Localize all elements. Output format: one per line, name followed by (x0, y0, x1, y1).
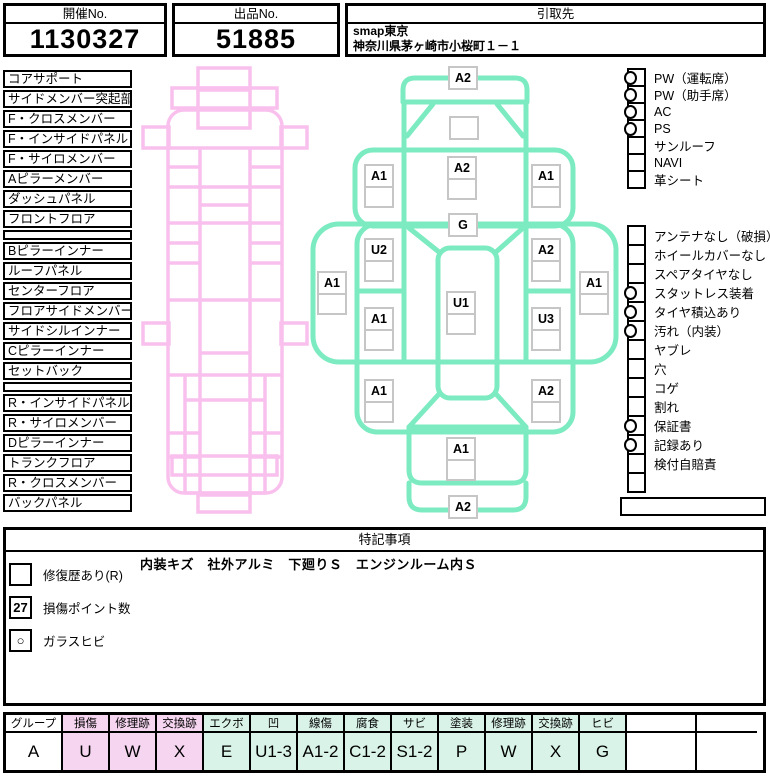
legend-column-header: エクボ (204, 715, 249, 733)
condition-checklist: アンテナなし（破損）ホイールカバーなしスペアタイヤなしスタットレス装着タイヤ積込… (627, 225, 770, 493)
damage-empty-cell (533, 186, 559, 206)
checklist-row: 革シート (627, 170, 737, 189)
check-circle-icon (624, 419, 637, 433)
legend-column-value: W (486, 733, 531, 770)
part-row: F・サイロメンバー (3, 150, 132, 168)
legend-column-value (627, 733, 695, 770)
lot-no-value: 51885 (175, 24, 337, 54)
legend-column-value: G (580, 733, 625, 770)
damage-empty-cell (581, 293, 607, 313)
damage-code: U2 (366, 240, 392, 260)
damage-empty-cell (448, 313, 474, 333)
lot-no-box: 出品No. 51885 (172, 3, 340, 57)
part-row: セットバック (3, 362, 132, 380)
damage-code: A1 (448, 439, 474, 459)
part-row: Cピラーインナー (3, 342, 132, 360)
legend-box (9, 563, 32, 586)
damage-marker-u1: U1 (446, 291, 476, 335)
damage-code: A1 (366, 309, 392, 329)
checkbox (627, 358, 646, 379)
part-row: フロアサイドメンバー (3, 302, 132, 320)
checklist-row: コゲ (627, 377, 770, 398)
checklist-row: 検付自賠責 (627, 453, 770, 474)
body-parts-list: コアサポートサイドメンバー突起部F・クロスメンバーF・インサイドパネルF・サイロ… (3, 70, 132, 514)
checkbox (627, 301, 646, 322)
legend-column: 線傷A1-2 (298, 715, 345, 770)
part-row: ダッシュパネル (3, 190, 132, 208)
legend-column (627, 715, 697, 770)
legend-column: ヒビG (580, 715, 627, 770)
checkbox (627, 377, 646, 398)
damage-marker-a1: A1 (364, 164, 394, 208)
legend-column: グループA (6, 715, 63, 770)
part-row: R・クロスメンバー (3, 474, 132, 492)
checklist-label: 検付自賠責 (654, 454, 717, 473)
legend-column-value: C1-2 (345, 733, 390, 770)
damage-code: U3 (533, 309, 559, 329)
legend-column-header: 線傷 (298, 715, 343, 733)
checklist-row: 記録あり (627, 434, 770, 455)
legend-column-value: U1-3 (251, 733, 296, 770)
legend-column-value (697, 733, 757, 770)
damage-marker-empty (449, 116, 479, 140)
checklist-row: タイヤ積込あり (627, 301, 770, 322)
part-separator (3, 382, 132, 392)
special-notes-remark: 内装キズ 社外アルミ 下廻りＳ エンジンルーム内Ｓ (140, 554, 477, 573)
damage-marker-a1: A1 (579, 271, 609, 315)
part-row: Aピラーメンバー (3, 170, 132, 188)
damage-code: G (450, 215, 476, 235)
legend-column-value: W (110, 733, 155, 770)
checklist-row: スペアタイヤなし (627, 263, 770, 284)
damage-empty-cell (533, 329, 559, 349)
checklist-label: NAVI (654, 156, 682, 170)
checklist-label: PS (654, 122, 671, 136)
damage-code: A2 (533, 381, 559, 401)
checklist-label: 穴 (654, 359, 667, 378)
legend-box: 27 (9, 596, 32, 619)
underbody-frame-diagram (140, 60, 310, 522)
damage-code (451, 118, 477, 138)
check-circle-icon (624, 324, 637, 338)
checklist-row: アンテナなし（破損） (627, 225, 770, 246)
legend-column-value: E (204, 733, 249, 770)
damage-marker-a1: A1 (364, 379, 394, 423)
legend-column: サビS1-2 (392, 715, 439, 770)
checklist-label: ヤブレ (654, 340, 692, 359)
legend-column: 損傷U (63, 715, 110, 770)
checklist-label: アンテナなし（破損） (654, 226, 770, 245)
checkbox (627, 244, 646, 265)
damage-marker-g: G (448, 213, 478, 237)
damage-code: A2 (533, 240, 559, 260)
checklist-label: タイヤ積込あり (654, 302, 741, 321)
damage-empty-cell (533, 401, 559, 421)
auction-no-label: 開催No. (6, 6, 164, 24)
damage-empty-cell (448, 459, 474, 479)
damage-code: A2 (449, 158, 475, 178)
legend-box: ○ (9, 629, 32, 652)
damage-marker-u3: U3 (531, 307, 561, 351)
checkbox (627, 434, 646, 455)
part-row: ルーフパネル (3, 262, 132, 280)
part-row: センターフロア (3, 282, 132, 300)
checkbox (627, 339, 646, 360)
damage-code: A2 (450, 68, 476, 88)
legend-label: 修復歴あり(R) (43, 565, 123, 584)
pickup-name: smap東京 (353, 24, 408, 39)
legend-column-value: X (533, 733, 578, 770)
repair-history-legend: 修復歴あり(R) (9, 563, 123, 586)
legend-column-header: 交換跡 (157, 715, 202, 733)
part-row: Dピラーインナー (3, 434, 132, 452)
damage-empty-cell (366, 260, 392, 280)
checkbox (627, 396, 646, 417)
auction-no-box: 開催No. 1130327 (3, 3, 167, 57)
checklist-label: ホイールカバーなし (654, 245, 766, 264)
legend-column: 交換跡X (157, 715, 204, 770)
damage-code: A1 (533, 166, 559, 186)
legend-column-header: 修理跡 (110, 715, 155, 733)
check-circle-icon (624, 88, 637, 102)
part-row: サイドシルインナー (3, 322, 132, 340)
legend-column-value: S1-2 (392, 733, 437, 770)
checklist-row: 割れ (627, 396, 770, 417)
damage-empty-cell (319, 293, 345, 313)
pickup-label: 引取先 (348, 6, 763, 24)
part-separator (3, 230, 132, 240)
checkbox (627, 170, 646, 189)
checkbox (627, 263, 646, 284)
damage-marker-a1: A1 (317, 271, 347, 315)
legend-column-header: 交換跡 (533, 715, 578, 733)
checkbox (627, 453, 646, 474)
checklist-label: スペアタイヤなし (654, 264, 753, 283)
checklist-row: 保証書 (627, 415, 770, 436)
part-row: トランクフロア (3, 454, 132, 472)
check-circle-icon (624, 105, 637, 119)
auction-sheet: 開催No. 1130327 出品No. 51885 引取先 smap東京 神奈川… (0, 0, 770, 777)
legend-column: 修理跡W (486, 715, 533, 770)
checkbox (627, 282, 646, 303)
part-row: コアサポート (3, 70, 132, 88)
legend-column-value: A (6, 733, 61, 770)
part-row: R・サイロメンバー (3, 414, 132, 432)
checklist-row: 穴 (627, 358, 770, 379)
lot-no-label: 出品No. (175, 6, 337, 24)
damage-empty-cell (366, 186, 392, 206)
damage-marker-a2: A2 (531, 379, 561, 423)
checklist-label: 割れ (654, 397, 679, 416)
legend-column-value: X (157, 733, 202, 770)
damage-empty-cell (366, 329, 392, 349)
checkbox (627, 225, 646, 246)
damage-code-table: グループA損傷U修理跡W交換跡XエクボE凹U1-3線傷A1-2腐食C1-2サビS… (3, 712, 766, 773)
legend-label: ガラスヒビ (43, 631, 105, 650)
checklist-label: 革シート (654, 170, 704, 189)
part-row: サイドメンバー突起部 (3, 90, 132, 108)
checklist-row: スタットレス装着 (627, 282, 770, 303)
part-row: Bピラーインナー (3, 242, 132, 260)
check-circle-icon (624, 71, 637, 85)
damage-marker-a1: A1 (531, 164, 561, 208)
legend-column: 腐食C1-2 (345, 715, 392, 770)
remarks-empty-box (620, 497, 766, 516)
check-circle-icon (624, 286, 637, 300)
glass-crack-legend: ○ガラスヒビ (9, 629, 105, 652)
checklist-row (627, 472, 770, 493)
damage-empty-cell (366, 401, 392, 421)
damage-points-legend: 27損傷ポイント数 (9, 596, 131, 619)
damage-marker-a2: A2 (531, 238, 561, 282)
checkbox (627, 472, 646, 493)
checklist-label: スタットレス装着 (654, 283, 754, 302)
legend-column-header: サビ (392, 715, 437, 733)
part-row: バックパネル (3, 494, 132, 512)
damage-marker-u2: U2 (364, 238, 394, 282)
checkbox (627, 320, 646, 341)
part-row: フロントフロア (3, 210, 132, 228)
legend-column (697, 715, 757, 770)
legend-column-value: A1-2 (298, 733, 343, 770)
legend-column: 凹U1-3 (251, 715, 298, 770)
legend-column: 塗装P (439, 715, 486, 770)
legend-column: 交換跡X (533, 715, 580, 770)
checklist-row: 汚れ（内装） (627, 320, 770, 341)
check-circle-icon (624, 122, 637, 136)
damage-marker-a1: A1 (364, 307, 394, 351)
legend-label: 損傷ポイント数 (43, 598, 131, 617)
check-circle-icon (624, 305, 637, 319)
damage-code: A1 (366, 166, 392, 186)
legend-column: エクボE (204, 715, 251, 770)
checkbox (627, 415, 646, 436)
damage-code: U1 (448, 293, 474, 313)
legend-column-header: 塗装 (439, 715, 484, 733)
checklist-row: ヤブレ (627, 339, 770, 360)
damage-empty-cell (533, 260, 559, 280)
check-circle-icon (624, 438, 637, 452)
part-row: R・インサイドパネル (3, 394, 132, 412)
damage-code: A1 (366, 381, 392, 401)
damage-empty-cell (449, 178, 475, 198)
legend-column-header: 凹 (251, 715, 296, 733)
damage-marker-a1: A1 (446, 437, 476, 481)
damage-code: A1 (319, 273, 345, 293)
special-notes-title: 特記事項 (6, 530, 763, 552)
damage-marker-a2: A2 (448, 495, 478, 519)
legend-column-value: U (63, 733, 108, 770)
checklist-label: 保証書 (654, 416, 692, 435)
legend-column-header: ヒビ (580, 715, 625, 733)
legend-column-value: P (439, 733, 484, 770)
damage-marker-a2: A2 (448, 66, 478, 90)
legend-column-header (627, 715, 695, 733)
legend-column-header: 損傷 (63, 715, 108, 733)
legend-column-header: 修理跡 (486, 715, 531, 733)
damage-marker-a2: A2 (447, 156, 477, 200)
legend-column-header (697, 715, 757, 733)
legend-column-header: 腐食 (345, 715, 390, 733)
part-row: F・インサイドパネル (3, 130, 132, 148)
checklist-label: PW（助手席） (654, 85, 737, 104)
part-row: F・クロスメンバー (3, 110, 132, 128)
legend-column-header: グループ (6, 715, 61, 733)
legend-column: 修理跡W (110, 715, 157, 770)
checklist-label: AC (654, 105, 671, 119)
pickup-box: 引取先 smap東京 神奈川県茅ヶ崎市小桜町１－１ (345, 3, 766, 57)
checklist-label: 汚れ（内装） (654, 321, 729, 340)
checklist-label: サンルーフ (654, 136, 716, 155)
checklist-label: 記録あり (654, 435, 704, 454)
checklist-label: コゲ (654, 378, 679, 397)
checklist-row: ホイールカバーなし (627, 244, 770, 265)
auction-no-value: 1130327 (6, 24, 164, 54)
equipment-checklist: PW（運転席）PW（助手席）ACPSサンルーフNAVI革シート (627, 68, 737, 189)
damage-code: A2 (450, 497, 476, 517)
damage-code: A1 (581, 273, 607, 293)
pickup-address: 神奈川県茅ヶ崎市小桜町１－１ (353, 39, 521, 54)
